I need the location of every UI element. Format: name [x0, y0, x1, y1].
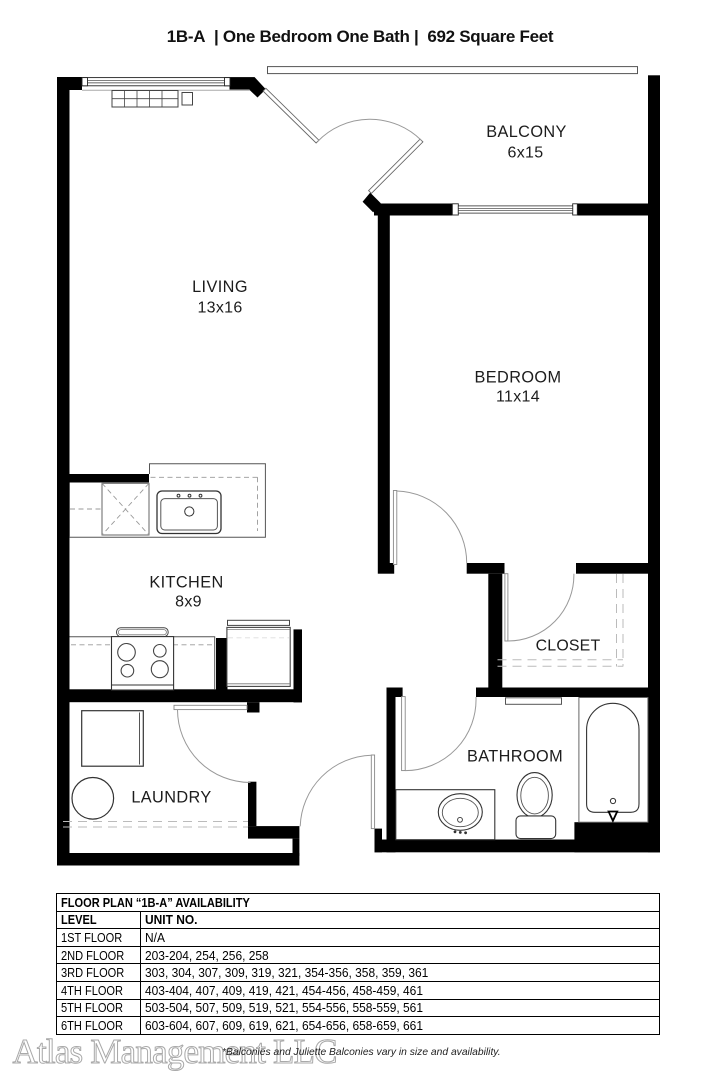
svg-text:6x15: 6x15: [508, 145, 544, 162]
svg-text:KITCHEN: KITCHEN: [149, 574, 223, 592]
svg-text:BEDROOM: BEDROOM: [475, 369, 562, 387]
svg-text:CLOSET: CLOSET: [536, 638, 601, 655]
svg-text:BATHROOM: BATHROOM: [467, 748, 563, 766]
svg-text:13x16: 13x16: [197, 300, 242, 317]
svg-text:8x9: 8x9: [175, 594, 202, 611]
svg-text:LAUNDRY: LAUNDRY: [131, 789, 211, 807]
svg-text:BALCONY: BALCONY: [486, 123, 567, 141]
svg-text:11x14: 11x14: [496, 389, 540, 406]
svg-text:LIVING: LIVING: [192, 278, 248, 296]
